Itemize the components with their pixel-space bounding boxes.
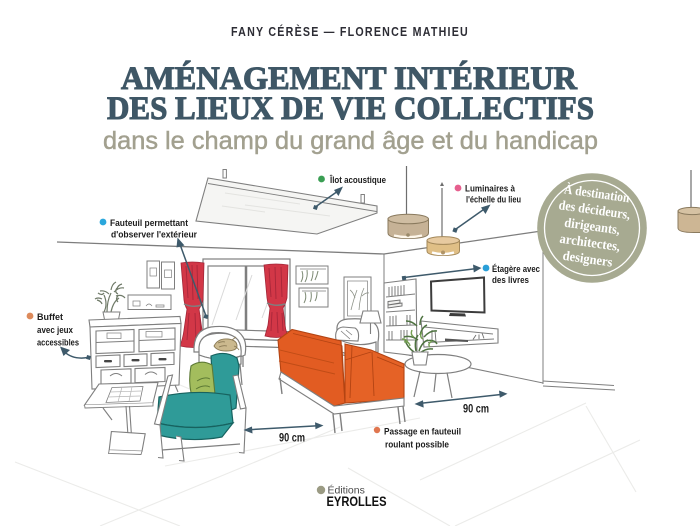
svg-text:Fauteuil permettant: Fauteuil permettant bbox=[110, 218, 189, 229]
svg-text:90 cm: 90 cm bbox=[463, 404, 489, 416]
svg-text:dans le champ du grand âge et: dans le champ du grand âge et du handica… bbox=[103, 127, 598, 155]
svg-text:FANY CÉRÈSE — FLORENCE MATHIEU: FANY CÉRÈSE — FLORENCE MATHIEU bbox=[231, 24, 469, 39]
svg-text:d'observer l'extérieur: d'observer l'extérieur bbox=[111, 230, 197, 241]
svg-text:Buffet: Buffet bbox=[37, 312, 64, 323]
svg-text:90 cm: 90 cm bbox=[279, 433, 305, 445]
svg-text:Passage en fauteuil: Passage en fauteuil bbox=[384, 427, 461, 438]
svg-text:Étagère avec: Étagère avec bbox=[492, 264, 540, 275]
svg-text:l'échelle du lieu: l'échelle du lieu bbox=[466, 195, 521, 206]
svg-text:avec jeux: avec jeux bbox=[37, 325, 74, 336]
svg-text:accessibles: accessibles bbox=[37, 338, 79, 349]
svg-text:DES LIEUX DE VIE COLLECTIFS: DES LIEUX DE VIE COLLECTIFS bbox=[107, 91, 594, 127]
svg-text:Luminaires à: Luminaires à bbox=[465, 184, 516, 195]
svg-text:EYROLLES: EYROLLES bbox=[327, 494, 387, 509]
svg-text:Îlot acoustique: Îlot acoustique bbox=[329, 174, 386, 186]
svg-text:roulant possible: roulant possible bbox=[385, 440, 449, 451]
svg-text:des livres: des livres bbox=[492, 275, 529, 286]
